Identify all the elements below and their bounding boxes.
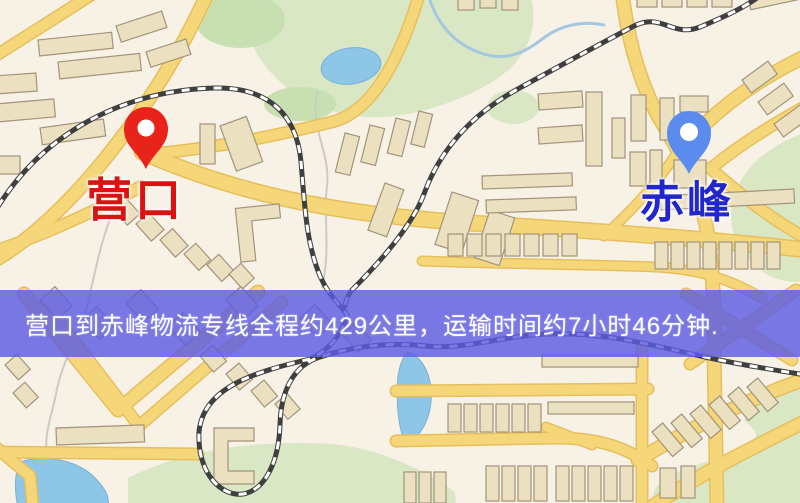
- red-pin-hole: [138, 120, 155, 137]
- blue-pin-hole: [680, 123, 698, 141]
- map-graphic: [0, 0, 800, 503]
- city-label-chifeng: 赤峰: [640, 181, 734, 225]
- map-canvas[interactable]: 营口 赤峰 营口到赤峰物流专线全程约429公里，运输时间约7小时46分钟.: [0, 0, 800, 503]
- route-info-banner: 营口到赤峰物流专线全程约429公里，运输时间约7小时46分钟.: [0, 290, 800, 357]
- route-info-text: 营口到赤峰物流专线全程约429公里，运输时间约7小时46分钟.: [25, 306, 719, 341]
- city-label-yingkou: 营口: [86, 177, 184, 223]
